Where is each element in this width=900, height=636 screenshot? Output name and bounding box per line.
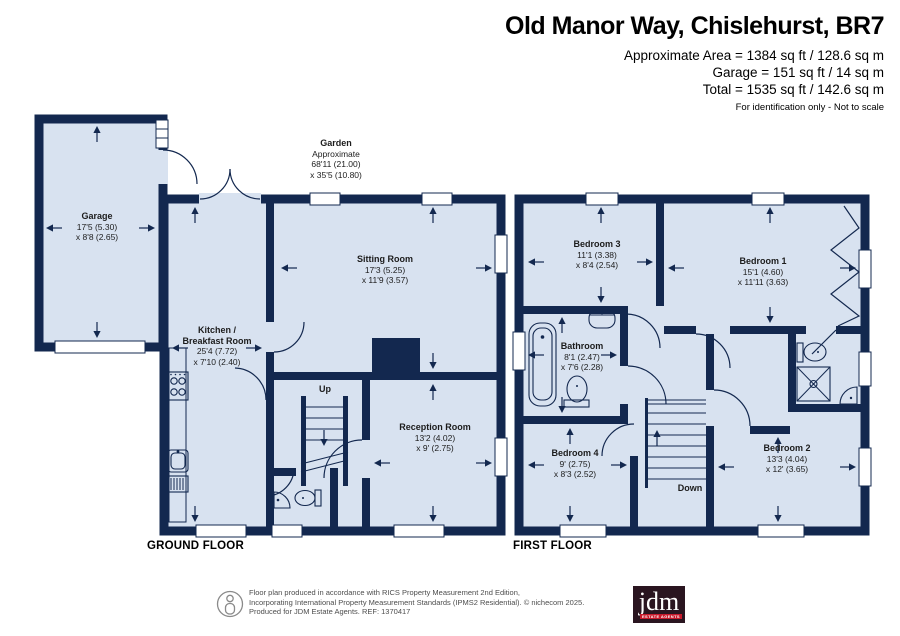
total-area-line: Total = 1535 sq ft / 142.6 sq m	[505, 81, 884, 98]
room-label-bedroom2: Bedroom 2 13'3 (4.04) x 12' (3.65)	[763, 443, 810, 475]
first-floor-label: FIRST FLOOR	[513, 540, 592, 552]
ground-floor-label: GROUND FLOOR	[147, 540, 244, 552]
approximate-area-line: Approximate Area = 1384 sq ft / 128.6 sq…	[505, 47, 884, 64]
title-block: Old Manor Way, Chislehurst, BR7 Approxim…	[505, 12, 884, 113]
footer-line2: Incorporating International Property Mea…	[249, 598, 584, 608]
room-label-reception: Reception Room 13'2 (4.02) x 9' (2.75)	[399, 422, 471, 454]
room-label-garage: Garage 17'5 (5.30) x 8'8 (2.65)	[76, 211, 118, 243]
stairs-down-label: Down	[678, 483, 703, 493]
garage-area-line: Garage = 151 sq ft / 14 sq m	[505, 64, 884, 81]
garage-side-door	[163, 150, 197, 184]
ground-floor-plan	[39, 119, 507, 537]
footer-line1: Floor plan produced in accordance with R…	[249, 588, 584, 598]
jdm-logo: jdm ESTATE AGENTS	[633, 586, 685, 623]
jdm-logo-ribbon: ESTATE AGENTS	[640, 614, 682, 619]
garden-label: Garden Approximate 68'11 (21.00) x 35'5 …	[310, 138, 362, 180]
chimney-breast	[372, 338, 420, 380]
stairs-up-label: Up	[319, 384, 331, 394]
person-icon	[218, 592, 243, 617]
identification-note: For identification only - Not to scale	[505, 102, 884, 113]
garage-door	[55, 341, 145, 353]
floorplan-page: Old Manor Way, Chislehurst, BR7 Approxim…	[0, 0, 900, 636]
garden-name: Garden	[310, 138, 362, 149]
footer-disclaimer: Floor plan produced in accordance with R…	[249, 588, 584, 617]
room-label-bedroom1: Bedroom 1 15'1 (4.60) x 11'11 (3.63)	[738, 256, 788, 288]
footer-line3: Produced for JDM Estate Agents. REF: 137…	[249, 607, 584, 617]
room-label-bathroom: Bathroom 8'1 (2.47) x 7'6 (2.28)	[561, 341, 604, 373]
room-label-bedroom4: Bedroom 4 9' (2.75) x 8'3 (2.52)	[551, 448, 598, 480]
room-label-bedroom3: Bedroom 3 11'1 (3.38) x 8'4 (2.54)	[573, 239, 620, 271]
room-label-sitting: Sitting Room 17'3 (5.25) x 11'9 (3.57)	[357, 254, 413, 286]
jdm-logo-word: jdm	[639, 589, 679, 615]
room-label-kitchen: Kitchen / Breakfast Room 25'4 (7.72) x 7…	[182, 325, 251, 367]
page-title: Old Manor Way, Chislehurst, BR7	[505, 12, 884, 41]
